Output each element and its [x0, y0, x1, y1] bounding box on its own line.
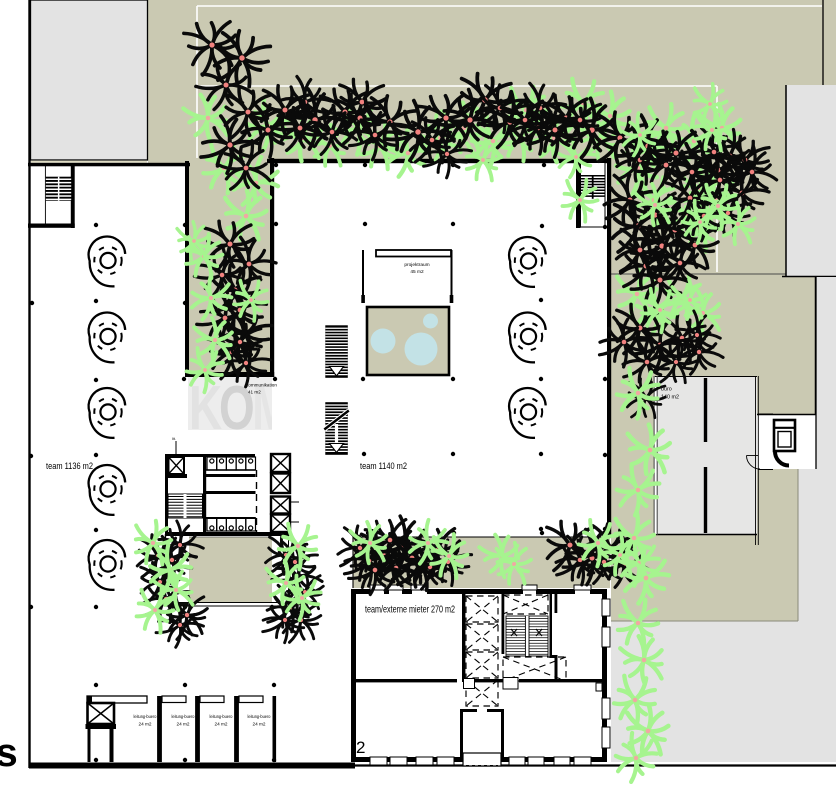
svg-text:41 m2: 41 m2: [248, 390, 261, 395]
svg-text:s: s: [0, 731, 18, 775]
svg-text:team/externe mieter 270 m2: team/externe mieter 270 m2: [365, 604, 455, 616]
svg-text:team 1140 m2: team 1140 m2: [360, 461, 407, 471]
svg-text:24 m2: 24 m2: [176, 722, 189, 727]
svg-text:2: 2: [356, 738, 365, 757]
svg-text:leitung-buero: leitung-buero: [248, 714, 271, 719]
svg-text:leitung-buero: leitung-buero: [134, 714, 157, 719]
svg-text:24 m2: 24 m2: [138, 722, 151, 727]
svg-text:kommunikation: kommunikation: [246, 383, 277, 388]
svg-text:24 m2: 24 m2: [252, 722, 265, 727]
svg-text:24 m2: 24 m2: [214, 722, 227, 727]
svg-text:leitung-buero: leitung-buero: [210, 714, 233, 719]
svg-text:45 m2: 45 m2: [410, 269, 424, 275]
svg-text:team 1136 m2: team 1136 m2: [46, 461, 93, 471]
svg-text:projektraum: projektraum: [404, 262, 429, 268]
svg-text:lit.: lit.: [172, 436, 176, 441]
svg-text:leitung-buero: leitung-buero: [172, 714, 195, 719]
